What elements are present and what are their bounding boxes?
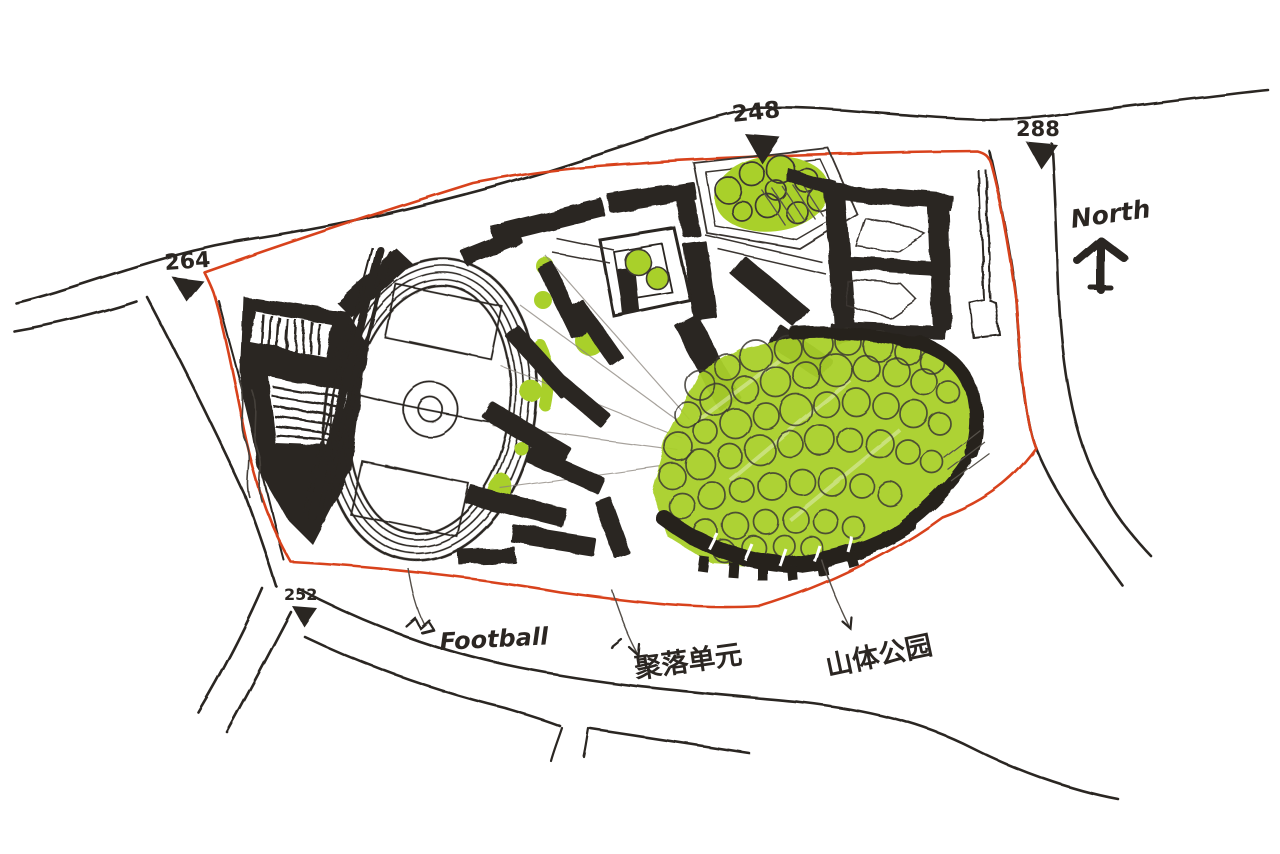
spot-elevation-southwest: 252 <box>284 585 317 627</box>
building-bar <box>676 190 701 238</box>
spot-elevation-ne-value: 288 <box>1016 117 1060 141</box>
leader-line <box>408 568 424 624</box>
north-marker: North <box>1069 194 1152 290</box>
road-branch-sw-1 <box>198 588 262 712</box>
building-bar <box>730 255 811 328</box>
halfway-line <box>354 393 507 424</box>
road-bottom-south-edge-2 <box>591 729 749 753</box>
label-mountain-park: 山体公园 <box>822 560 935 683</box>
north-arrow-icon <box>1078 241 1125 290</box>
building-bar <box>465 484 567 528</box>
goal-line-top <box>409 342 473 356</box>
site-plan-sketch: 248 288 264 252 North Football 聚落单元 <box>0 0 1280 854</box>
road-branch-sw-2 <box>227 612 291 732</box>
spot-elevation-west-value: 264 <box>164 248 212 276</box>
courtyard-building <box>600 228 690 316</box>
road-stub-1 <box>551 728 562 761</box>
building-bar <box>458 547 517 565</box>
ladder-court-outline-1 <box>856 218 925 252</box>
elevation-triangle-icon <box>292 606 317 627</box>
ladder-court-outline-2 <box>846 280 917 318</box>
building-bar <box>544 368 612 429</box>
building-bar <box>593 495 630 559</box>
center-circle <box>399 378 461 440</box>
goal-line-bottom <box>385 465 448 478</box>
leader-arrow-icon <box>406 618 433 632</box>
l-shaped-outline <box>970 170 999 337</box>
mountain-park-label: 山体公园 <box>823 630 935 683</box>
road-stub-2 <box>584 729 589 757</box>
building-bar <box>510 525 596 556</box>
north-label: North <box>1069 194 1152 234</box>
settlement-unit-label: 聚落单元 <box>632 639 744 685</box>
spot-elevation-top-value: 248 <box>731 97 781 128</box>
building-bar <box>683 241 718 322</box>
spot-elevation-sw-value: 252 <box>284 585 317 604</box>
road-left-lower-edge <box>14 301 136 331</box>
elevation-triangle-icon <box>172 277 204 302</box>
penalty-box-bottom <box>350 461 469 537</box>
football-label: Football <box>439 622 550 656</box>
sketch-canvas: 248 288 264 252 North Football 聚落单元 <box>0 0 1280 854</box>
